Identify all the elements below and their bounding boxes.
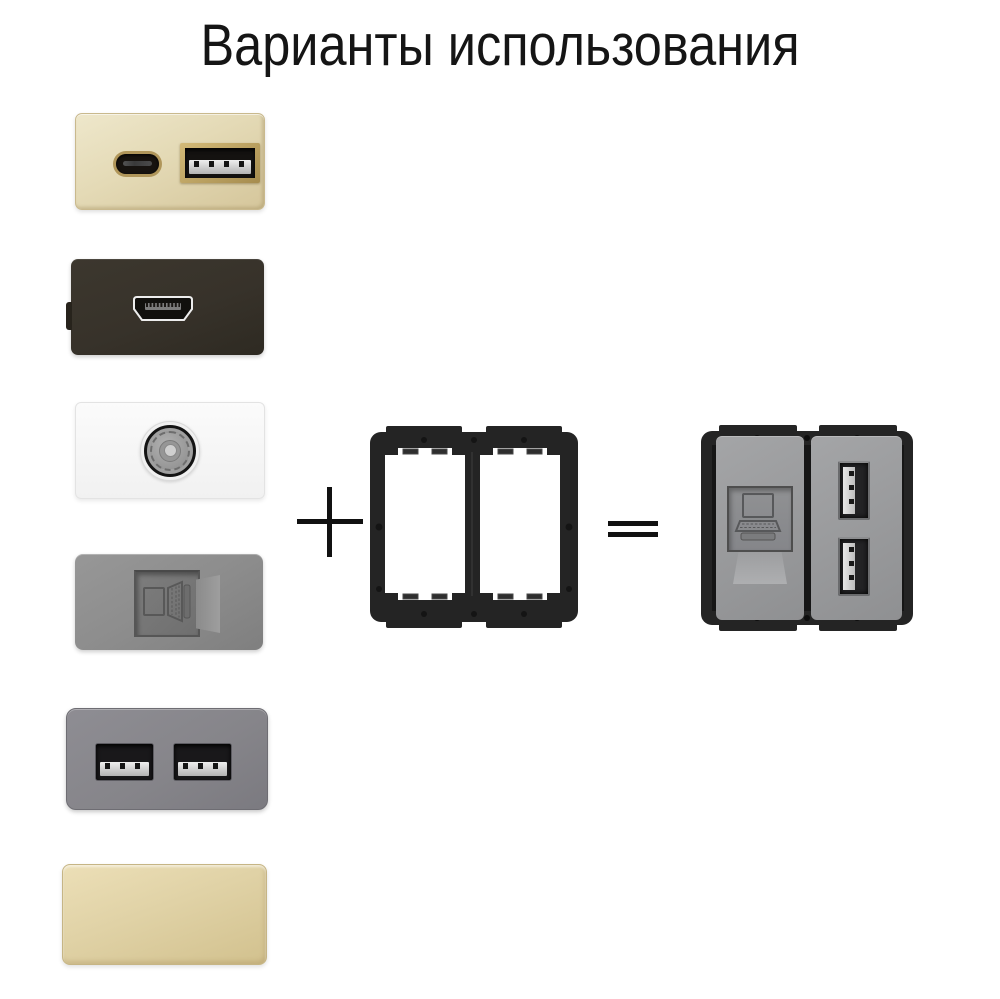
module-ethernet bbox=[75, 554, 263, 650]
usb-a-port-icon bbox=[838, 537, 870, 596]
module-side-tab bbox=[66, 302, 72, 330]
usb-c-tongue bbox=[123, 161, 152, 166]
usb-a-cavity bbox=[185, 148, 255, 178]
module-dual-usb bbox=[66, 708, 268, 810]
ethernet-jack-icon bbox=[134, 570, 200, 637]
module-hdmi bbox=[71, 259, 264, 355]
usb-a-port-icon bbox=[96, 744, 153, 780]
product-usage-figure: Варианты использования bbox=[0, 0, 1000, 999]
usb-a-tongue bbox=[189, 160, 251, 174]
tv-connector-ring bbox=[144, 425, 196, 477]
result-dual-usb-module bbox=[811, 436, 902, 620]
mounting-frame bbox=[370, 424, 578, 630]
ethernet-dust-cover bbox=[733, 552, 787, 584]
computer-icon-rotated bbox=[136, 572, 194, 631]
computer-icon bbox=[729, 488, 787, 546]
plus-horizontal-bar bbox=[297, 519, 363, 524]
ethernet-dust-cover bbox=[196, 575, 220, 633]
usb-a-tongue bbox=[843, 467, 855, 514]
module-blank bbox=[62, 864, 267, 965]
tv-connector-icon bbox=[140, 421, 200, 481]
assembled-result bbox=[701, 423, 913, 633]
usb-a-tongue bbox=[843, 543, 855, 590]
page-title: Варианты использования bbox=[65, 12, 935, 79]
ethernet-jack-icon bbox=[727, 486, 793, 552]
usb-a-port-icon bbox=[180, 143, 260, 183]
usb-a-port-icon bbox=[838, 461, 870, 520]
module-tv-antenna bbox=[75, 402, 265, 499]
usb-a-port-icon bbox=[174, 744, 231, 780]
tv-connector-pin bbox=[164, 444, 177, 457]
equals-bottom-bar bbox=[608, 532, 658, 537]
result-ethernet-module bbox=[716, 436, 804, 620]
usb-c-port-icon bbox=[116, 154, 159, 174]
hdmi-port-icon bbox=[133, 296, 193, 322]
usb-a-tongue bbox=[178, 762, 227, 776]
equals-icon bbox=[608, 521, 658, 538]
usb-a-tongue bbox=[100, 762, 149, 776]
tv-connector-collar bbox=[159, 440, 181, 462]
tv-connector-thread bbox=[150, 431, 190, 471]
module-usb-c-usb-a bbox=[75, 113, 265, 210]
plus-icon bbox=[297, 487, 363, 557]
equals-top-bar bbox=[608, 521, 658, 526]
